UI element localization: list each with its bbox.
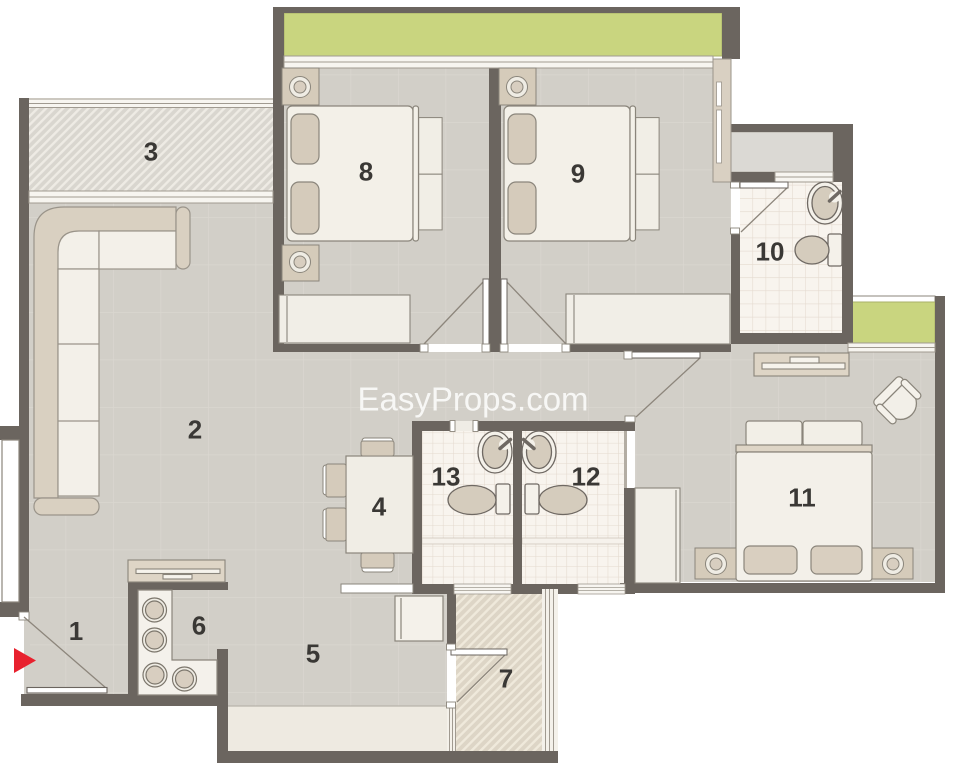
- svg-text:8: 8: [359, 157, 373, 187]
- svg-text:2: 2: [188, 415, 202, 445]
- svg-text:10: 10: [756, 237, 785, 267]
- svg-text:1: 1: [69, 616, 83, 646]
- svg-text:9: 9: [571, 159, 585, 189]
- svg-text:EasyProps.com: EasyProps.com: [357, 381, 588, 418]
- svg-text:4: 4: [372, 492, 387, 522]
- svg-text:3: 3: [144, 137, 158, 167]
- svg-text:6: 6: [192, 611, 206, 641]
- svg-text:11: 11: [788, 483, 816, 513]
- svg-text:5: 5: [306, 639, 320, 669]
- svg-text:13: 13: [432, 462, 461, 492]
- svg-text:12: 12: [572, 462, 601, 492]
- svg-text:7: 7: [499, 664, 513, 694]
